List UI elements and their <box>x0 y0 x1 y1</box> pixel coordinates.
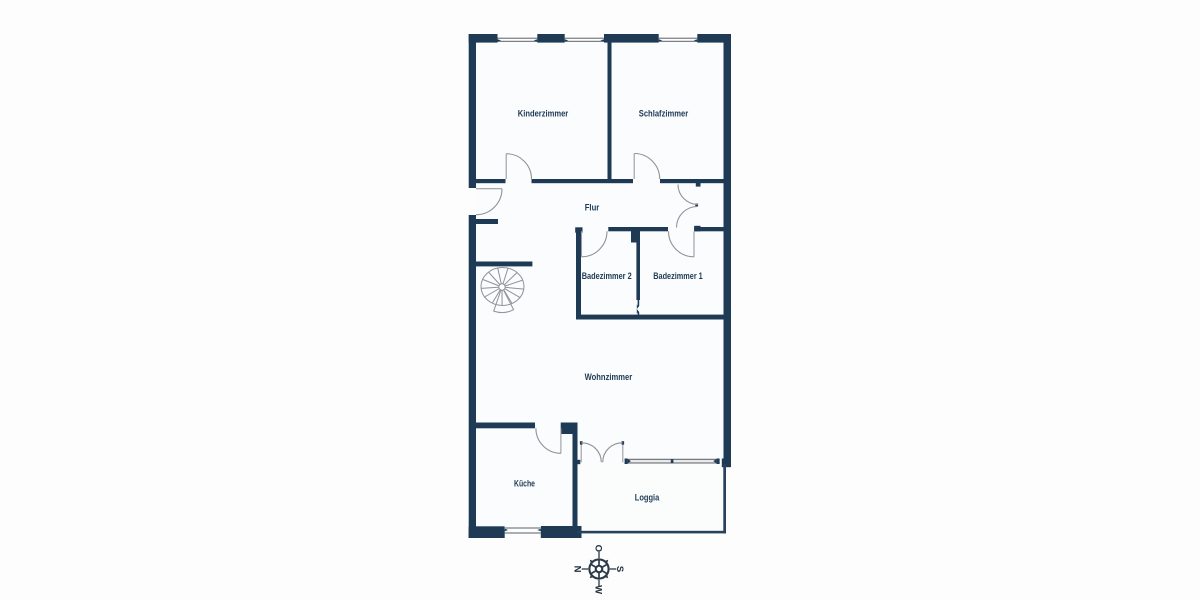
svg-text:Kinderzimmer: Kinderzimmer <box>518 109 569 120</box>
svg-text:Wohnzimmer: Wohnzimmer <box>585 372 633 383</box>
svg-text:Flur: Flur <box>585 203 600 214</box>
svg-text:Schlafzimmer: Schlafzimmer <box>639 109 689 120</box>
svg-text:N: N <box>571 566 582 573</box>
svg-text:Loggia: Loggia <box>635 493 660 504</box>
svg-text:Badezimmer 2: Badezimmer 2 <box>582 271 632 282</box>
svg-text:O: O <box>593 545 604 552</box>
svg-text:Küche: Küche <box>514 479 535 490</box>
svg-text:Badezimmer 1: Badezimmer 1 <box>653 271 703 282</box>
svg-text:W: W <box>593 585 604 594</box>
svg-text:S: S <box>614 566 625 572</box>
